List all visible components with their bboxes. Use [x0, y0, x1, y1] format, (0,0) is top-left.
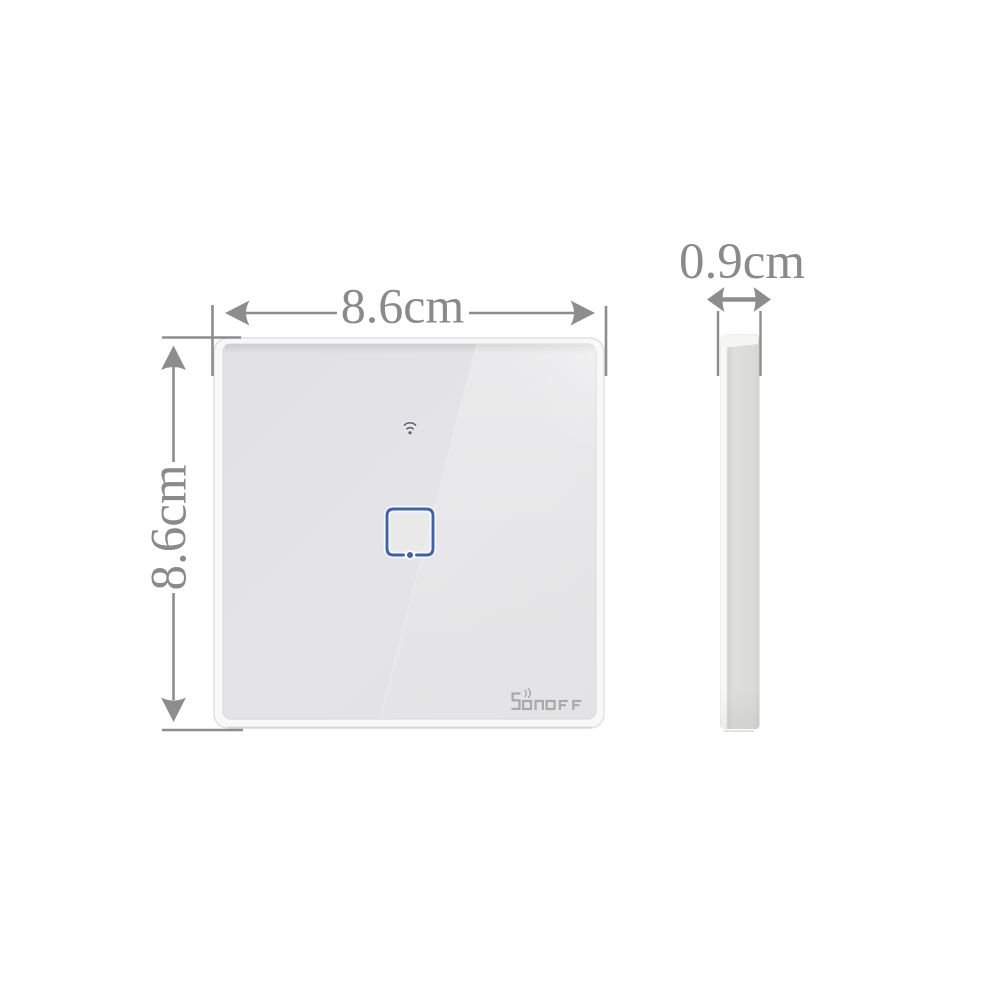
svg-text:0.9cm: 0.9cm — [679, 234, 805, 290]
svg-text:8.6cm: 8.6cm — [142, 464, 198, 590]
svg-text:8.6cm: 8.6cm — [341, 278, 465, 334]
